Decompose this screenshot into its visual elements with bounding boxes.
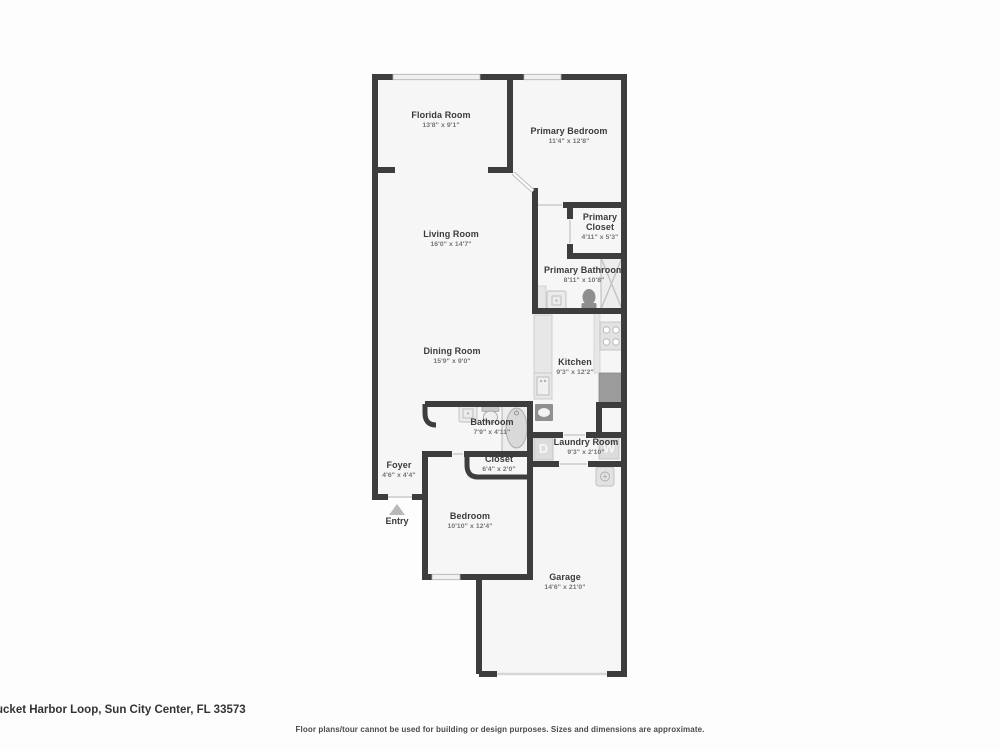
svg-text:D: D: [539, 441, 548, 456]
washer-icon: W: [599, 437, 619, 459]
window: [524, 74, 561, 79]
entry-label: Entry: [385, 516, 408, 526]
disclaimer-text: Floor plans/tour cannot be used for buil…: [0, 725, 1000, 734]
property-address: ucket Harbor Loop, Sun City Center, FL 3…: [0, 704, 246, 716]
window: [393, 74, 480, 79]
bathtub-icon: [502, 404, 531, 453]
dishwasher-icon: [534, 373, 552, 399]
entry-arrow-icon: [389, 504, 405, 515]
utility-sink-icon: [535, 404, 553, 421]
sink-icon: [547, 291, 566, 310]
stove-icon: [600, 322, 622, 350]
svg-text:W: W: [603, 441, 616, 456]
dryer-icon: D: [534, 438, 553, 460]
water-heater-icon: [596, 467, 614, 486]
floor-plan: D W: [0, 0, 1000, 750]
floor: [375, 77, 624, 674]
counter: [594, 313, 600, 373]
refrigerator-icon: [599, 373, 623, 403]
shower-icon: [601, 258, 622, 309]
toilet-icon: [482, 405, 499, 423]
counter: [534, 315, 552, 373]
window: [432, 574, 460, 579]
sink-icon: [459, 406, 477, 422]
floor-plan-drawing: D W: [0, 0, 1000, 750]
